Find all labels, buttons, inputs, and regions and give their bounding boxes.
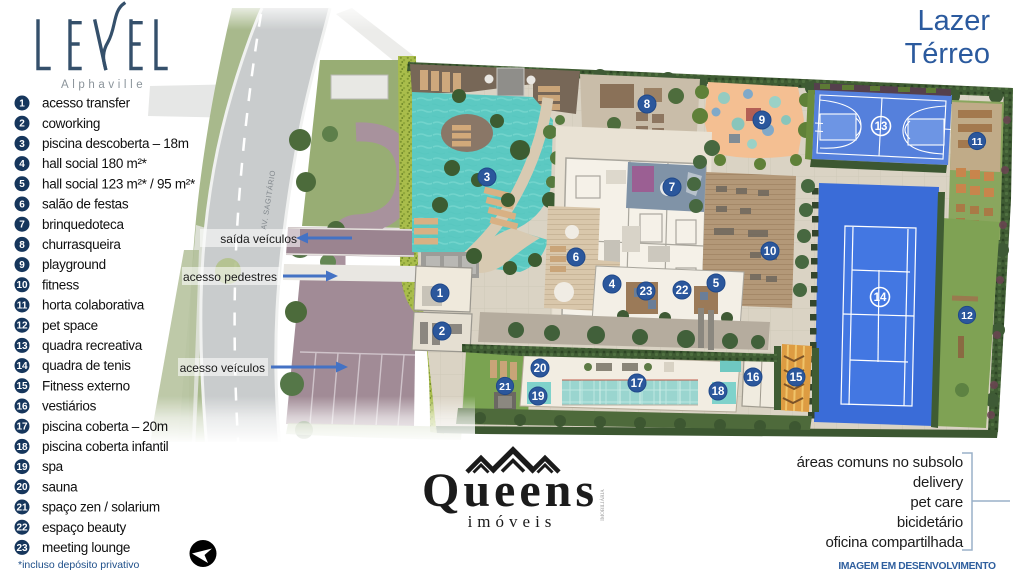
svg-text:3: 3 bbox=[484, 172, 490, 184]
svg-text:18: 18 bbox=[712, 386, 725, 398]
svg-text:3: 3 bbox=[19, 139, 25, 150]
svg-text:20: 20 bbox=[16, 482, 28, 493]
svg-text:acesso pedestres: acesso pedestres bbox=[183, 270, 277, 284]
svg-text:coworking: coworking bbox=[42, 116, 100, 131]
svg-text:5: 5 bbox=[19, 179, 25, 190]
svg-text:22: 22 bbox=[16, 523, 28, 534]
svg-text:11: 11 bbox=[17, 300, 28, 311]
svg-text:18: 18 bbox=[16, 442, 28, 453]
svg-text:6: 6 bbox=[19, 199, 25, 210]
svg-text:12: 12 bbox=[961, 310, 973, 322]
svg-text:23: 23 bbox=[16, 543, 28, 554]
svg-text:17: 17 bbox=[631, 378, 644, 390]
svg-text:acesso transfer: acesso transfer bbox=[42, 96, 131, 111]
svg-text:13: 13 bbox=[16, 341, 28, 352]
svg-text:2: 2 bbox=[439, 326, 445, 338]
svg-text:acesso veículos: acesso veículos bbox=[180, 361, 265, 375]
svg-text:7: 7 bbox=[19, 220, 25, 231]
svg-text:bicidetário: bicidetário bbox=[897, 514, 963, 531]
svg-text:10: 10 bbox=[764, 246, 777, 258]
svg-text:1: 1 bbox=[19, 98, 25, 109]
svg-text:horta colaborativa: horta colaborativa bbox=[42, 298, 145, 313]
svg-text:17: 17 bbox=[16, 422, 28, 433]
svg-text:Queens: Queens bbox=[422, 464, 598, 517]
svg-text:9: 9 bbox=[759, 115, 765, 127]
svg-text:playground: playground bbox=[42, 257, 106, 272]
svg-text:churrasqueira: churrasqueira bbox=[42, 237, 121, 252]
svg-text:spa: spa bbox=[42, 459, 64, 474]
svg-text:16: 16 bbox=[747, 372, 760, 384]
svg-text:Térreo: Térreo bbox=[905, 38, 990, 70]
svg-text:Lazer: Lazer bbox=[917, 5, 990, 37]
svg-text:10: 10 bbox=[16, 280, 28, 291]
svg-text:brinquedoteca: brinquedoteca bbox=[42, 217, 124, 232]
svg-text:14: 14 bbox=[16, 361, 28, 372]
svg-text:piscina descoberta – 18m: piscina descoberta – 18m bbox=[42, 136, 189, 151]
svg-text:IMOBILIÁRIA: IMOBILIÁRIA bbox=[600, 489, 606, 521]
svg-text:6: 6 bbox=[573, 252, 579, 264]
svg-text:hall social 180 m²*: hall social 180 m²* bbox=[42, 156, 148, 171]
svg-text:23: 23 bbox=[640, 286, 653, 298]
svg-text:9: 9 bbox=[19, 260, 25, 271]
svg-text:saída veículos: saída veículos bbox=[220, 232, 297, 246]
svg-text:spaço zen / solarium: spaço zen / solarium bbox=[42, 500, 160, 515]
svg-text:14: 14 bbox=[874, 292, 887, 304]
svg-text:fitness: fitness bbox=[42, 277, 79, 292]
svg-text:21: 21 bbox=[499, 381, 511, 393]
svg-text:pet care: pet care bbox=[910, 494, 963, 511]
svg-text:sauna: sauna bbox=[42, 479, 78, 494]
svg-text:1: 1 bbox=[437, 288, 444, 300]
svg-text:áreas comuns no subsolo: áreas comuns no subsolo bbox=[797, 454, 963, 471]
svg-text:piscina coberta – 20m: piscina coberta – 20m bbox=[42, 419, 168, 434]
svg-text:5: 5 bbox=[713, 278, 720, 290]
svg-text:15: 15 bbox=[790, 372, 803, 384]
svg-text:4: 4 bbox=[19, 159, 25, 170]
svg-text:*incluso depósito privativo: *incluso depósito privativo bbox=[18, 559, 140, 571]
svg-text:19: 19 bbox=[16, 462, 28, 473]
svg-text:piscina coberta infantil: piscina coberta infantil bbox=[42, 439, 169, 454]
svg-text:15: 15 bbox=[16, 381, 28, 392]
svg-text:7: 7 bbox=[669, 182, 675, 194]
svg-text:12: 12 bbox=[16, 321, 28, 332]
svg-text:quadra recreativa: quadra recreativa bbox=[42, 338, 143, 353]
svg-text:20: 20 bbox=[534, 363, 547, 375]
svg-text:oficina compartilhada: oficina compartilhada bbox=[825, 534, 963, 551]
svg-text:16: 16 bbox=[16, 401, 28, 412]
svg-text:delivery: delivery bbox=[913, 474, 964, 491]
svg-text:13: 13 bbox=[875, 121, 888, 133]
svg-text:vestiários: vestiários bbox=[42, 399, 97, 414]
svg-text:imóveis: imóveis bbox=[468, 512, 557, 531]
svg-text:salão de festas: salão de festas bbox=[42, 197, 129, 212]
svg-text:11: 11 bbox=[971, 136, 982, 148]
svg-text:22: 22 bbox=[676, 285, 689, 297]
svg-text:8: 8 bbox=[19, 240, 25, 251]
svg-text:19: 19 bbox=[532, 391, 545, 403]
svg-text:Alphaville: Alphaville bbox=[61, 79, 146, 91]
svg-text:2: 2 bbox=[19, 119, 25, 130]
svg-text:4: 4 bbox=[609, 279, 616, 291]
svg-text:8: 8 bbox=[644, 99, 651, 111]
svg-text:IMAGEM EM DESENVOLVIMENTO: IMAGEM EM DESENVOLVIMENTO bbox=[838, 561, 996, 572]
svg-text:hall social 123 m²* / 95 m²*: hall social 123 m²* / 95 m²* bbox=[42, 176, 196, 191]
svg-text:meeting lounge: meeting lounge bbox=[42, 540, 130, 555]
svg-text:quadra de tenis: quadra de tenis bbox=[42, 358, 131, 373]
svg-text:21: 21 bbox=[16, 502, 28, 513]
svg-text:espaço beauty: espaço beauty bbox=[42, 520, 126, 535]
svg-text:pet space: pet space bbox=[42, 318, 98, 333]
svg-text:Fitness externo: Fitness externo bbox=[42, 378, 130, 393]
